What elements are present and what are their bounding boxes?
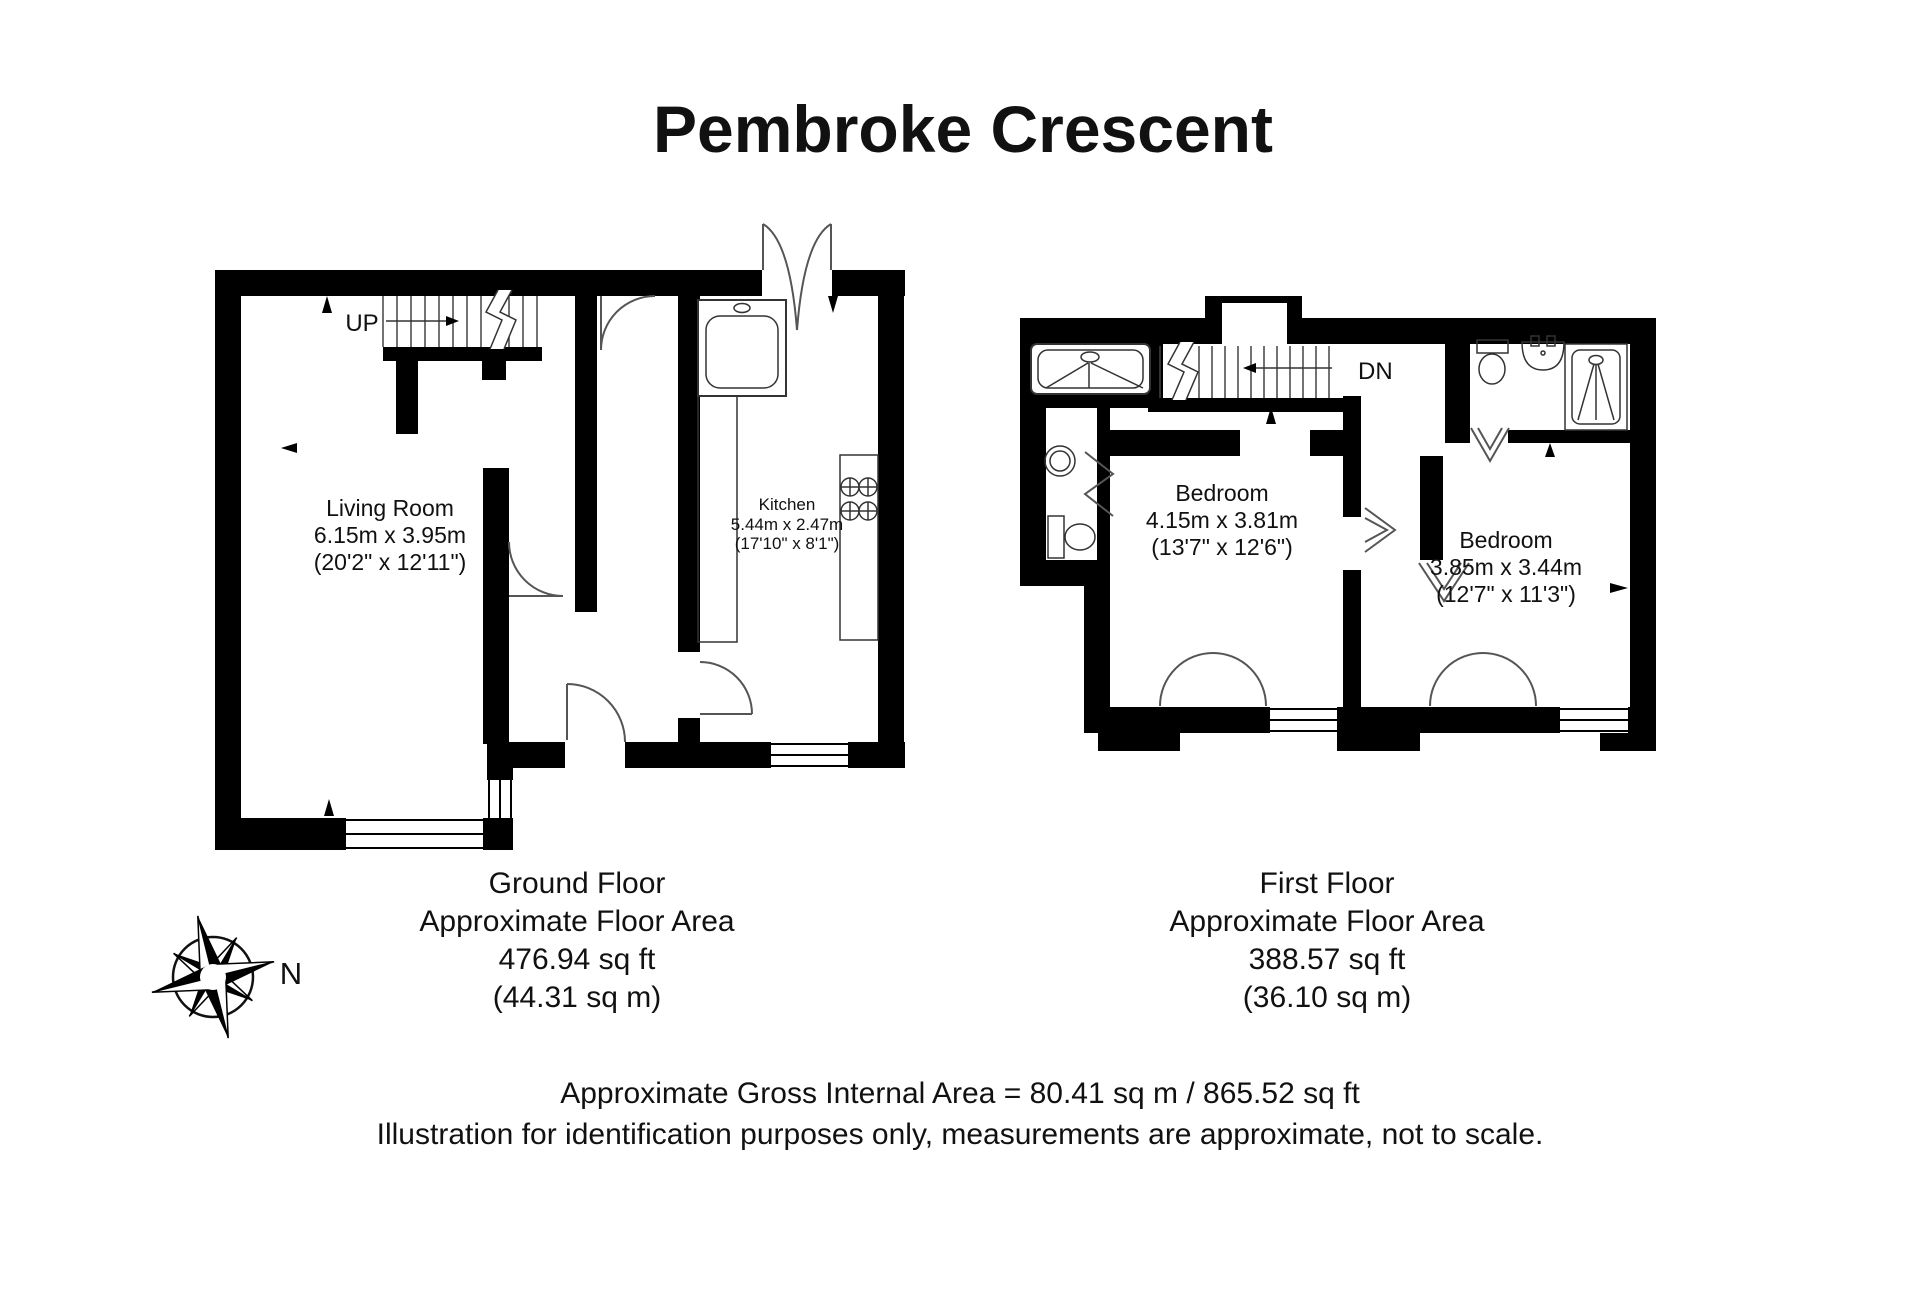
ground-floor-name: Ground Floor xyxy=(489,867,666,900)
washbasin-round-icon xyxy=(1045,446,1075,476)
ground-floor-subtitle: Approximate Floor Area xyxy=(419,905,734,938)
living-room-label: Living Room 6.15m x 3.95m (20'2" x 12'11… xyxy=(314,495,467,575)
down-arrow-icon xyxy=(1243,363,1256,373)
kitchen-metric: 5.44m x 2.47m xyxy=(731,515,843,534)
footer-disclaimer: Approximate Gross Internal Area = 80.41 … xyxy=(377,1077,1544,1151)
bathtub-icon xyxy=(1031,344,1150,394)
footer-line2: Illustration for identification purposes… xyxy=(377,1118,1544,1151)
floorplan-page: Pembroke Crescent xyxy=(0,0,1920,1295)
compass-north-label: N xyxy=(280,956,302,991)
ground-floor-windows xyxy=(346,744,848,848)
first-floor-summary: First Floor Approximate Floor Area 388.5… xyxy=(1169,867,1484,1014)
kitchen-name: Kitchen xyxy=(759,495,816,514)
kitchen-imperial: (17'10" x 8'1") xyxy=(735,534,840,553)
shower-icon xyxy=(1565,344,1627,430)
bedroom2-name: Bedroom xyxy=(1459,527,1552,553)
staircase-up: UP xyxy=(345,290,537,349)
first-floor-plan: DN xyxy=(1020,296,1656,751)
bedroom2-imperial: (12'7" x 11'3") xyxy=(1436,581,1576,607)
living-room-name: Living Room xyxy=(326,495,454,521)
compass-rose-icon: N xyxy=(152,916,302,1038)
kitchen-sink-icon xyxy=(698,300,786,396)
page-title: Pembroke Crescent xyxy=(653,92,1273,166)
first-floor-area-m: (36.10 sq m) xyxy=(1243,981,1411,1014)
stairs-down-label: DN xyxy=(1358,358,1393,385)
hob-icon xyxy=(841,478,877,520)
kitchen-label: Kitchen 5.44m x 2.47m (17'10" x 8'1") xyxy=(731,495,843,553)
footer-line1: Approximate Gross Internal Area = 80.41 … xyxy=(560,1077,1360,1110)
ground-floor-area-m: (44.31 sq m) xyxy=(493,981,661,1014)
living-room-metric: 6.15m x 3.95m xyxy=(314,522,466,548)
bedroom2-metric: 3.85m x 3.44m xyxy=(1430,554,1582,580)
ground-floor-plan: UP xyxy=(215,224,905,850)
staircase-down: DN xyxy=(1160,342,1393,400)
bedroom1-label: Bedroom 4.15m x 3.81m (13'7" x 12'6") xyxy=(1146,480,1298,560)
first-floor-name: First Floor xyxy=(1260,867,1395,900)
bedroom1-metric: 4.15m x 3.81m xyxy=(1146,507,1298,533)
floorplan-canvas: Pembroke Crescent xyxy=(0,0,1920,1295)
stairs-up-label: UP xyxy=(345,310,378,337)
bedroom1-imperial: (13'7" x 12'6") xyxy=(1151,534,1292,560)
ground-floor-summary: Ground Floor Approximate Floor Area 476.… xyxy=(419,867,734,1014)
ground-floor-area-ft: 476.94 sq ft xyxy=(499,943,656,976)
bedroom1-name: Bedroom xyxy=(1175,480,1268,506)
living-room-imperial: (20'2" x 12'11") xyxy=(314,549,467,575)
first-floor-subtitle: Approximate Floor Area xyxy=(1169,905,1484,938)
toilet-right-icon xyxy=(1477,340,1508,384)
first-floor-area-ft: 388.57 sq ft xyxy=(1249,943,1406,976)
toilet-left-icon xyxy=(1048,516,1095,558)
bedroom2-label: Bedroom 3.85m x 3.44m (12'7" x 11'3") xyxy=(1430,527,1582,607)
